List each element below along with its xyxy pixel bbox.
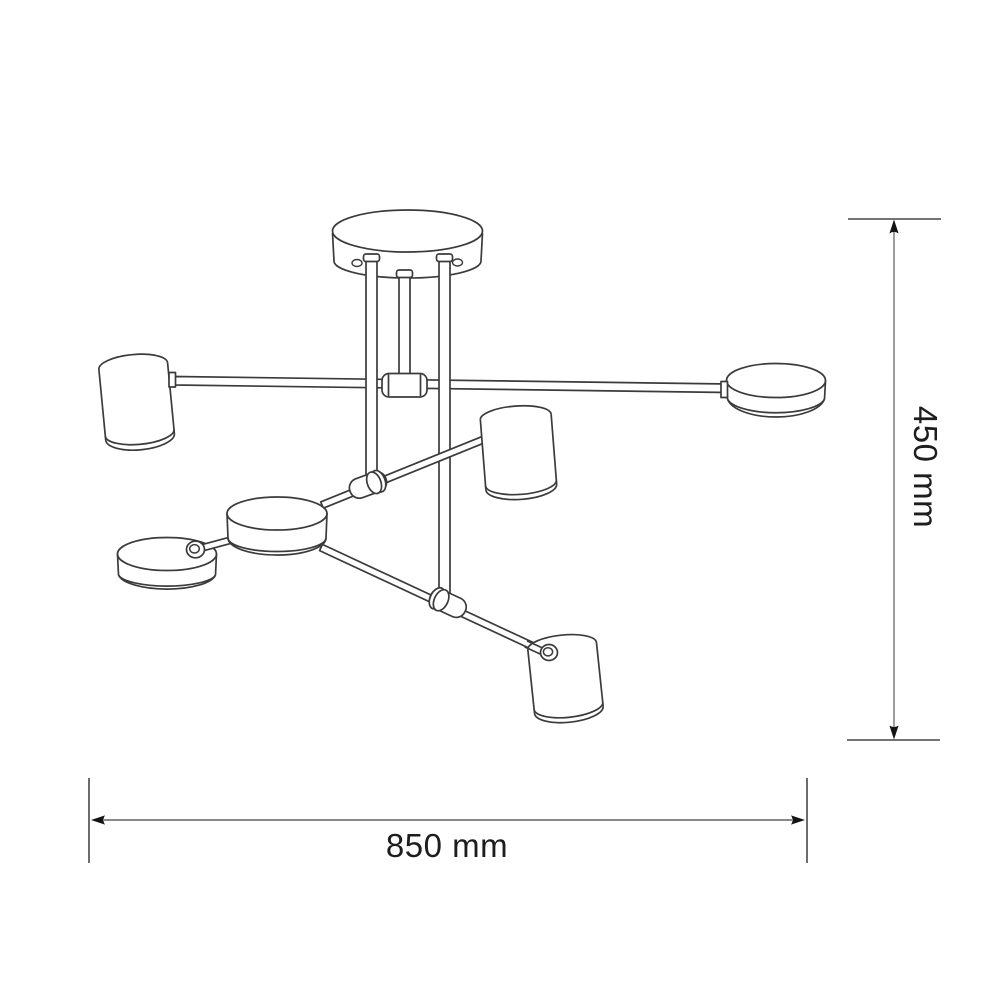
arm-ring-lower-left xyxy=(187,541,205,558)
ceiling-canopy xyxy=(333,210,483,278)
spot-head-center-disc xyxy=(227,497,327,555)
lamp-drawing xyxy=(98,210,826,726)
arrowhead-right xyxy=(791,815,805,824)
rod-right xyxy=(437,254,453,594)
rod-left xyxy=(364,254,380,478)
dimension-width: 850 mm xyxy=(89,778,807,864)
height-dimension-label: 450 mm xyxy=(907,406,944,528)
arm-ring-bottom xyxy=(541,645,558,661)
drawing-canvas: 450 mm 850 mm xyxy=(0,0,1000,1000)
arrowhead-down xyxy=(889,726,898,740)
arm-connector-right xyxy=(721,382,728,398)
lamp-technical-drawing: 450 mm 850 mm xyxy=(0,0,1000,1000)
arrowhead-left xyxy=(91,815,105,824)
horizontal-arm xyxy=(175,377,728,393)
dimension-height: 450 mm xyxy=(847,219,944,740)
spot-head-right-disc xyxy=(727,364,826,418)
diagonal-arm-upper xyxy=(321,435,488,508)
rod-middle xyxy=(397,270,413,377)
width-dimension-label: 850 mm xyxy=(386,827,508,864)
spot-head-middle-cylinder xyxy=(479,403,557,502)
arm-junction-block xyxy=(382,374,427,398)
spot-head-left-cylinder xyxy=(98,351,176,453)
arrowhead-up xyxy=(889,220,898,234)
arm-connector-left xyxy=(169,373,176,388)
